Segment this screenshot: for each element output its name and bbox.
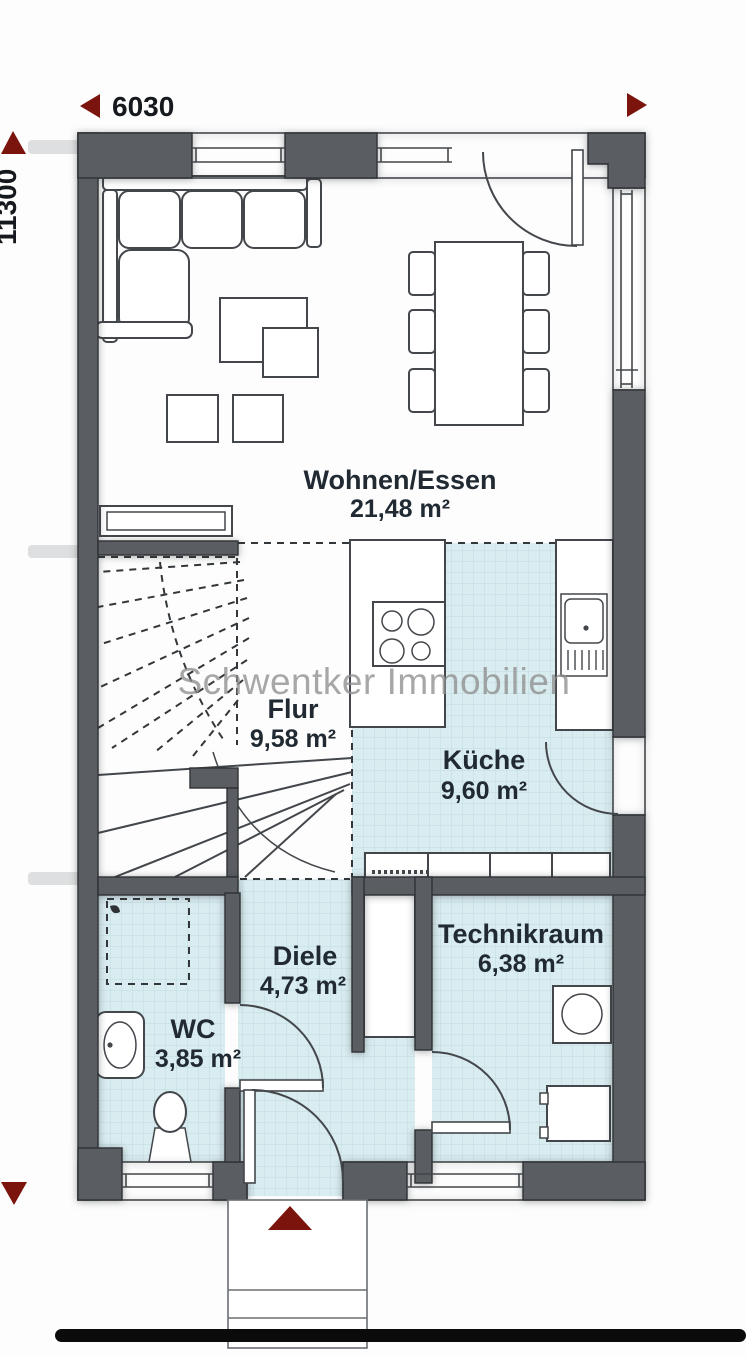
wall-flur-wc [98,877,238,895]
room-area-technikraum: 6,38 m² [478,950,564,978]
wall-wohnen-flur [98,541,238,555]
ground-baseline [55,1329,746,1342]
cooktop-icon [373,602,445,666]
dining-chair [523,252,549,295]
wall-diele-technik-lower [415,1130,432,1183]
room-label-diele: Diele [273,941,338,971]
room-label-wohnen-essen: Wohnen/Essen [303,465,496,495]
door-leaf [572,150,583,245]
room-area-wc: 3,85 m² [155,1045,241,1073]
washbasin-icon [96,1012,144,1078]
dining-chair [409,310,435,353]
exterior-wall-top-pier [285,133,377,178]
dining-table-set [409,242,549,425]
wall-wc-diele-upper [225,893,240,1003]
wall-diele-technik-upper [415,877,432,1050]
watermark-text: Schwentker Immobilien [178,661,571,702]
technical-appliance-icon [540,1086,610,1141]
dining-chair [523,369,549,412]
door-leaf [432,1122,510,1133]
room-label-kueche: Küche [443,745,526,775]
exterior-wall-bottom-pier-2 [343,1162,407,1200]
exterior-wall-right-low [613,815,645,1200]
exterior-wall-left [78,133,98,1200]
exterior-wall-bottom-corner-right [523,1162,645,1200]
washing-machine-icon [553,986,611,1043]
floor-plan-svg: 6030 11300 Wohnen/Essen 21,48 m² Flur 9,… [0,0,746,1357]
exterior-wall-top-corner-left [78,133,192,178]
dining-chair [409,252,435,295]
dimension-height-label: 11300 [0,169,22,245]
exterior-wall-bottom-corner-left [78,1148,122,1200]
wall-diele-niche [352,877,364,1052]
exterior-wall-right-mid [613,390,645,737]
dining-table [435,242,523,425]
dimension-width-label: 6030 [112,91,174,122]
kitchen-base-cabinets [365,853,610,878]
sideboard [100,506,232,536]
door-leaf [244,1090,255,1183]
dining-chair [523,310,549,353]
room-label-wc: WC [171,1014,216,1044]
wall-kueche-back [352,877,645,895]
dining-chair [409,369,435,412]
entrance-porch [228,1200,367,1348]
room-area-kueche: 9,60 m² [441,777,527,805]
built-in-niche [364,891,415,1037]
room-area-diele: 4,73 m² [260,972,346,1000]
room-label-technikraum: Technikraum [438,919,604,949]
exterior-wall-bottom-pier-1 [213,1162,247,1200]
wall-wc-diele-lower [225,1088,240,1162]
stair-side-wall [227,788,238,877]
room-area-wohnen-essen: 21,48 m² [350,495,450,523]
stair-newel-wall [190,768,238,788]
room-area-flur: 9,58 m² [250,725,336,753]
